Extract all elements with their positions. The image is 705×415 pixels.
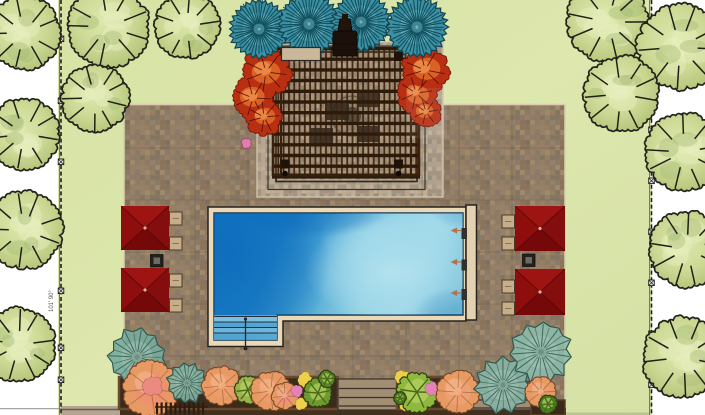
svg-text:101' 90°: 101' 90°: [49, 290, 55, 312]
